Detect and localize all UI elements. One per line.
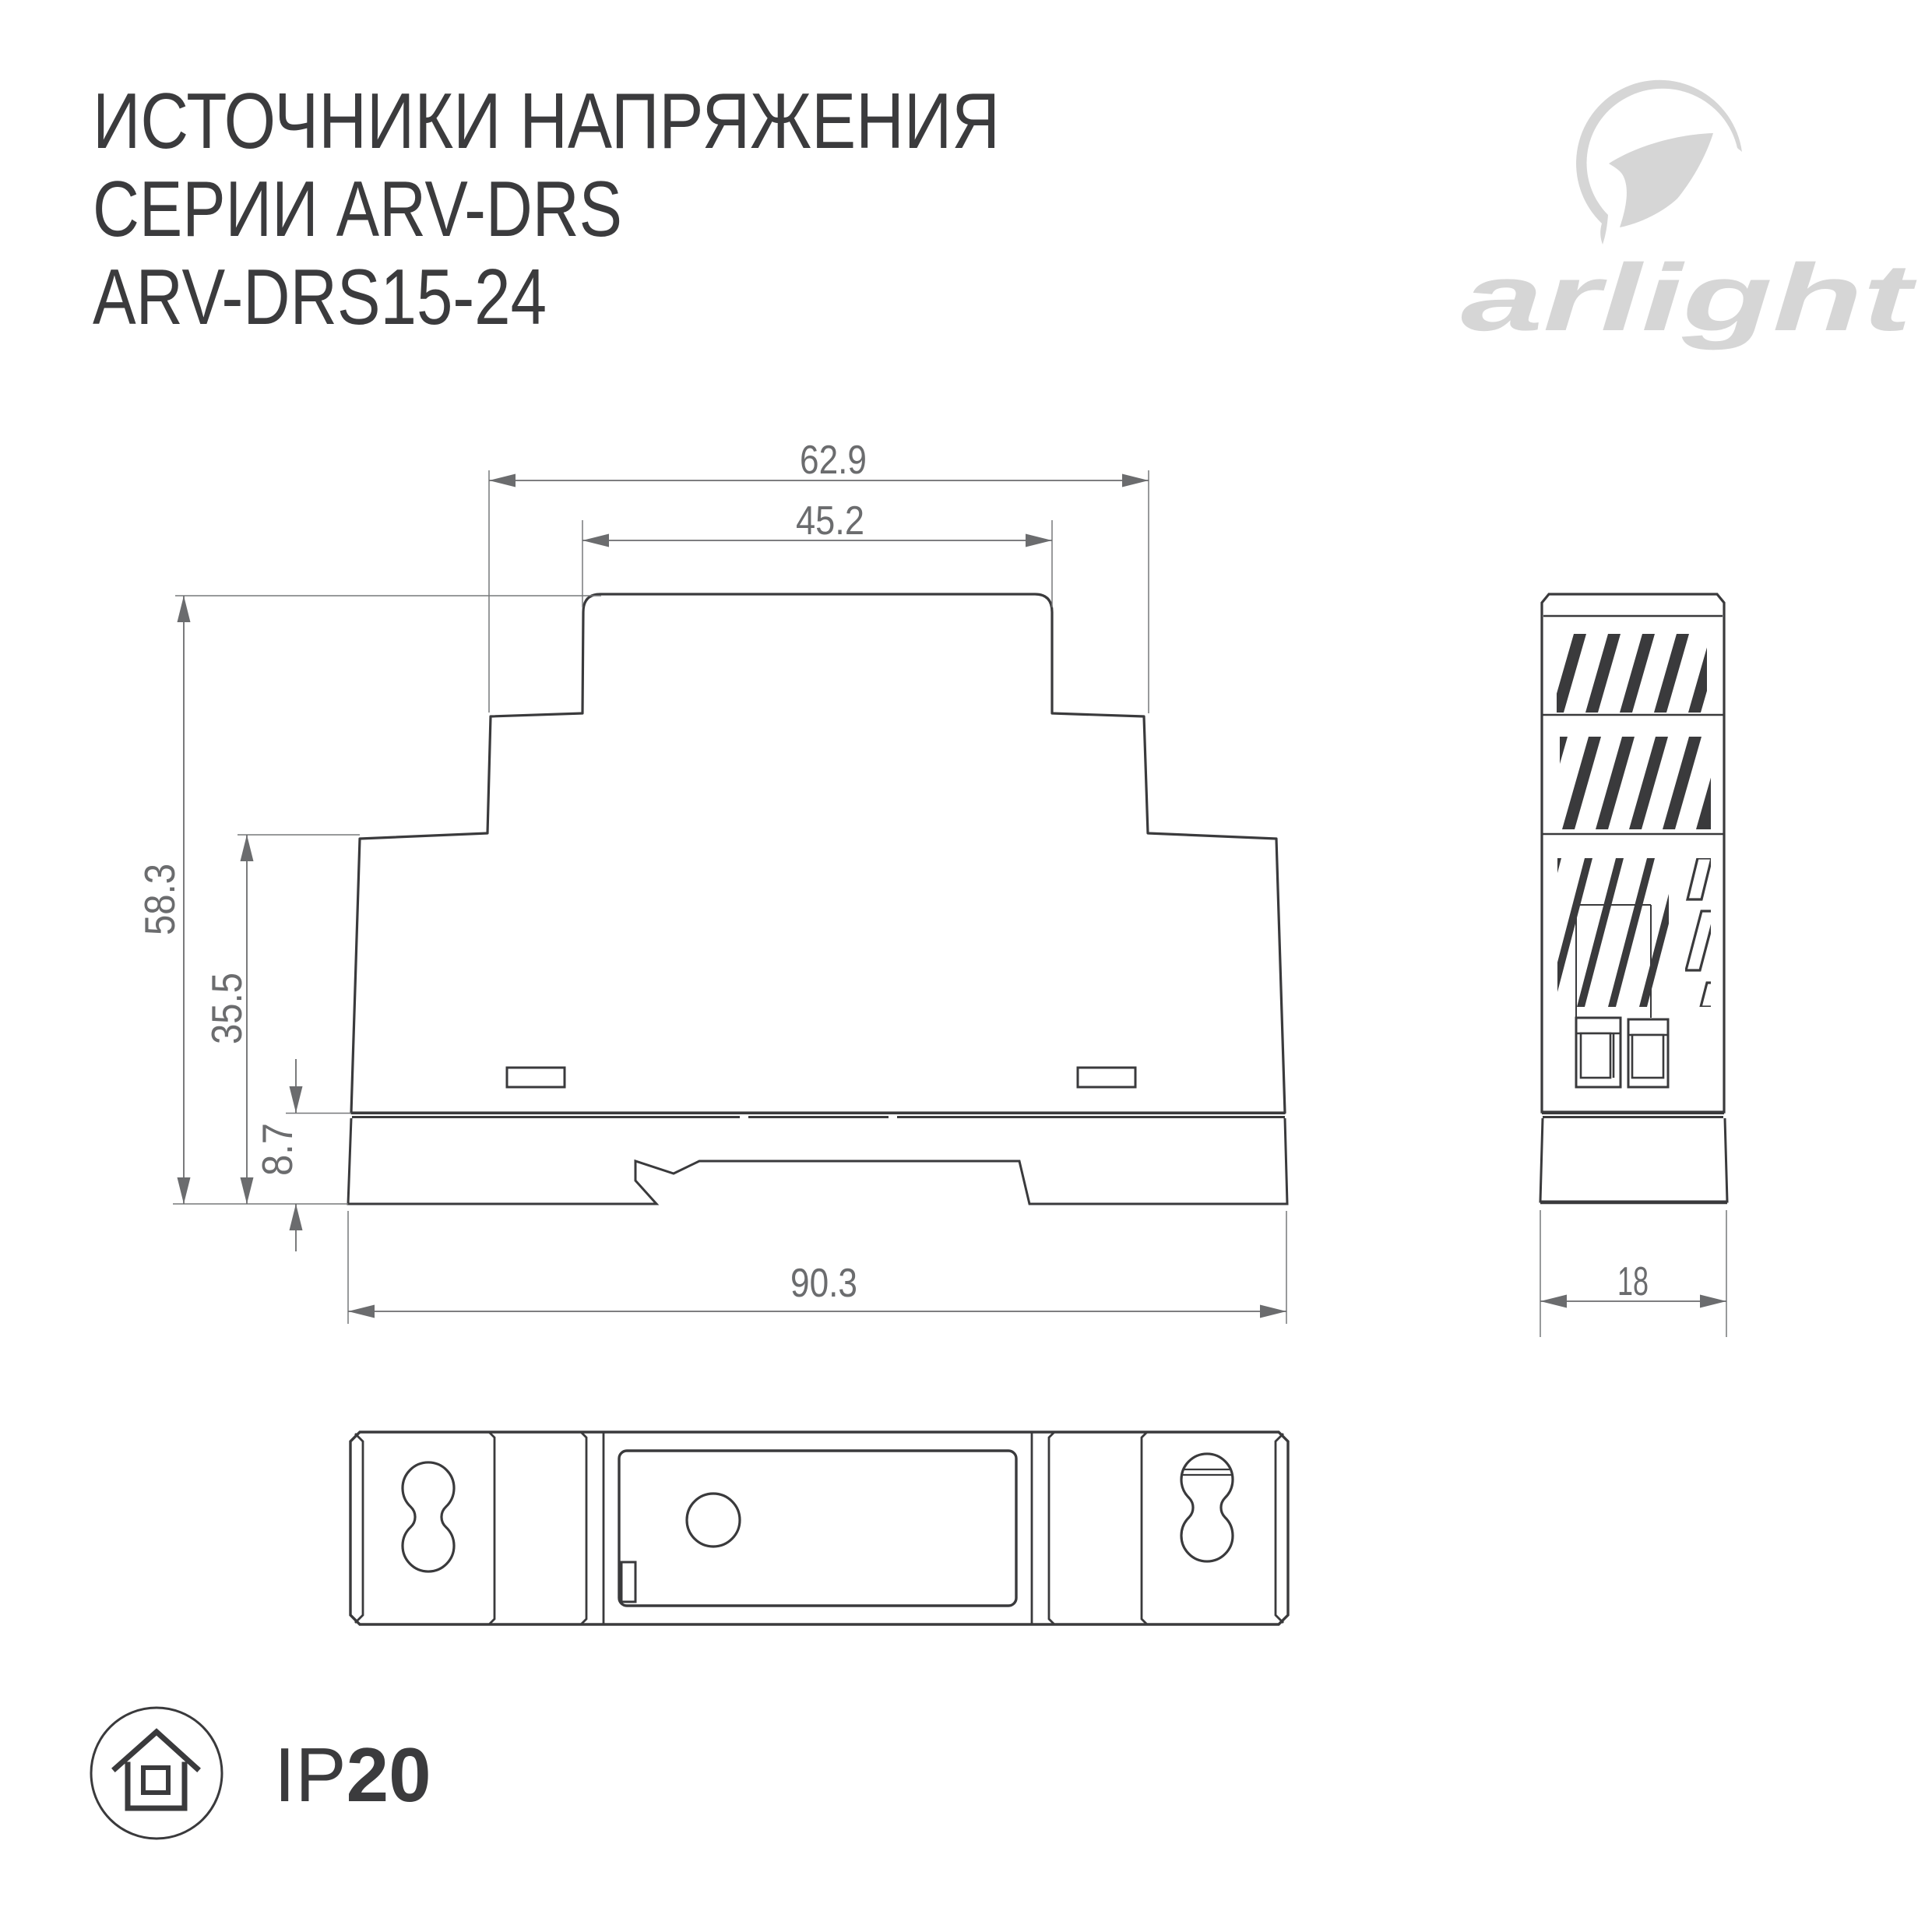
svg-text:arlight: arlight: [1461, 245, 1917, 350]
svg-text:ИСТОЧНИКИ НАПРЯЖЕНИЯ: ИСТОЧНИКИ НАПРЯЖЕНИЯ: [93, 78, 1000, 165]
svg-text:90.3: 90.3: [790, 1261, 857, 1306]
svg-text:ARV-DRS15-24: ARV-DRS15-24: [93, 254, 547, 341]
svg-text:45.2: 45.2: [796, 498, 864, 544]
svg-text:СЕРИИ ARV-DRS: СЕРИИ ARV-DRS: [93, 166, 622, 253]
svg-text:58.3: 58.3: [135, 864, 184, 935]
svg-text:62.9: 62.9: [800, 438, 867, 483]
svg-text:18: 18: [1617, 1259, 1649, 1304]
svg-text:35.5: 35.5: [202, 973, 251, 1044]
svg-text:IP20: IP20: [274, 1732, 431, 1818]
svg-text:8.7: 8.7: [253, 1123, 301, 1176]
